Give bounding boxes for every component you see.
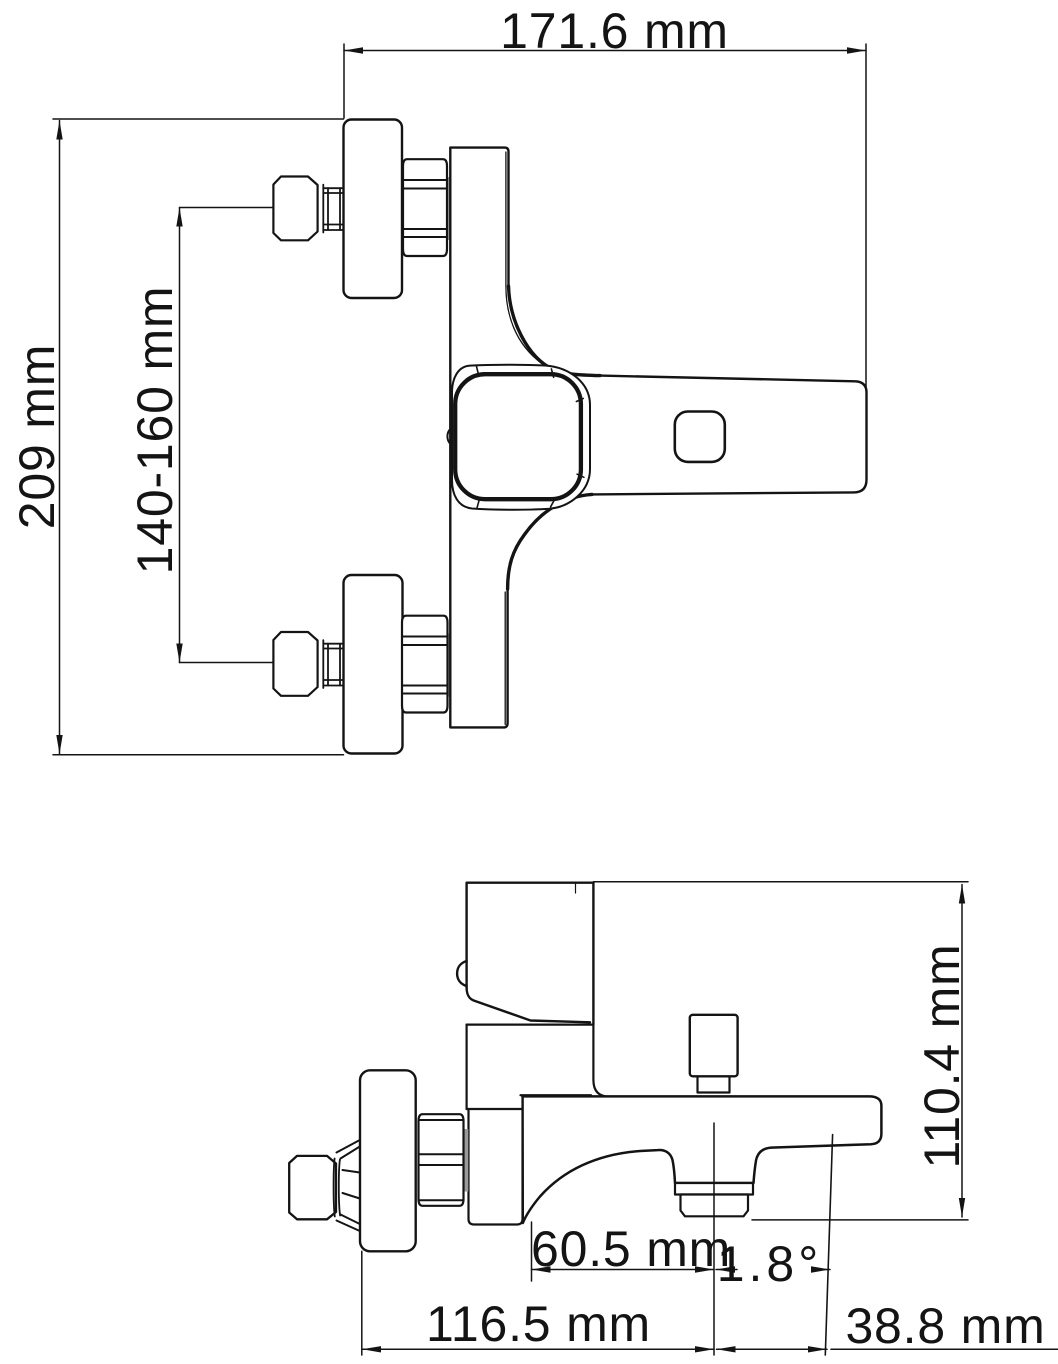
- svg-text:209 mm: 209 mm: [9, 344, 65, 529]
- svg-text:140-160 mm: 140-160 mm: [127, 286, 183, 575]
- svg-text:38.8 mm: 38.8 mm: [845, 1298, 1045, 1354]
- svg-text:1.8°: 1.8°: [717, 1236, 823, 1292]
- svg-text:116.5 mm: 116.5 mm: [426, 1296, 651, 1352]
